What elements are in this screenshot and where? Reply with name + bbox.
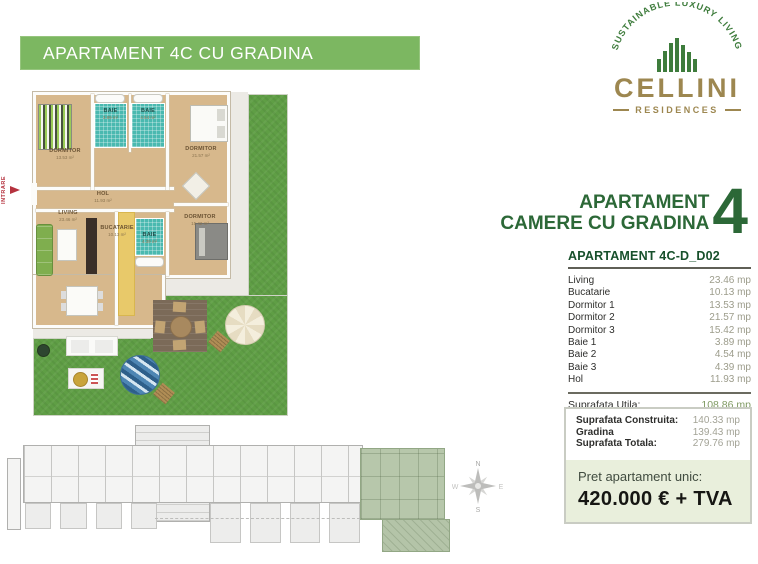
table-row: Dormitor 221.57 mp bbox=[568, 312, 751, 324]
garden-bench bbox=[66, 336, 118, 356]
bathtub-icon bbox=[95, 94, 125, 103]
bed-striped-icon bbox=[38, 104, 72, 150]
building-left-wing bbox=[7, 458, 21, 530]
brochure-page: APARTAMENT 4C CU GRADINA SUSTAINABLE LUX… bbox=[0, 0, 758, 564]
compass-icon: N S E W bbox=[452, 458, 504, 514]
summary-row: Suprafata Totala:279.76 mp bbox=[576, 438, 740, 450]
entrance-arrow-icon bbox=[10, 186, 20, 194]
highlighted-unit bbox=[360, 448, 445, 501]
right-dash bbox=[725, 109, 741, 111]
bathtub-icon bbox=[135, 257, 164, 267]
apartment-heading: APARTAMENT CAMERE CU GRADINA 4 bbox=[500, 188, 748, 238]
wall bbox=[166, 94, 169, 190]
bed-gray-icon bbox=[195, 223, 228, 260]
umbrella-blue-icon bbox=[120, 355, 160, 395]
summary-row: Suprafata Construita:140.33 mp bbox=[576, 415, 740, 427]
area-table: APARTAMENT 4C-D_D02 Living23.46 mp Bucat… bbox=[568, 249, 751, 411]
dining-table-icon bbox=[66, 286, 98, 316]
patio-deck bbox=[153, 300, 207, 352]
wall bbox=[174, 203, 228, 206]
balcony-row-right bbox=[210, 503, 360, 543]
wall bbox=[166, 212, 169, 276]
title-banner: APARTAMENT 4C CU GRADINA bbox=[20, 36, 420, 70]
coffee-table-icon bbox=[57, 229, 77, 261]
heading-line1: APARTAMENT bbox=[500, 192, 709, 213]
bathtub-icon bbox=[133, 94, 163, 103]
room-label-baie-1: BAIE3.89 m² bbox=[94, 108, 127, 121]
room-label-dormitor-2: DORMITOR21.57 m² bbox=[174, 146, 228, 159]
entrance-label: INTRARE bbox=[1, 176, 7, 204]
dimension-line bbox=[155, 518, 360, 519]
table-row: Hol11.93 mp bbox=[568, 374, 751, 386]
room-label-dormitor-1: DORMITOR13.53 m² bbox=[40, 148, 90, 161]
entrance-door-gap bbox=[31, 183, 37, 205]
heading-line2: CAMERE CU GRADINA bbox=[500, 213, 709, 234]
table-row: Baie 13.89 mp bbox=[568, 337, 751, 349]
room-label-living: LIVING23.46 m² bbox=[48, 210, 88, 223]
compass-n: N bbox=[475, 461, 480, 468]
brand-subtitle: RESIDENCES bbox=[635, 105, 719, 115]
summary-price-box: Suprafata Construita:140.33 mp Gradina13… bbox=[564, 407, 752, 524]
room-label-baie-3: BAIE4.39 m² bbox=[135, 232, 164, 245]
highlighted-unit-lower bbox=[360, 500, 445, 520]
table-row: Baie 24.54 mp bbox=[568, 349, 751, 361]
balcony-row-left bbox=[25, 503, 157, 529]
price-label: Pret apartament unic: bbox=[578, 469, 738, 484]
table-row: Baie 34.39 mp bbox=[568, 362, 751, 374]
walkway-right bbox=[230, 92, 248, 295]
wall bbox=[36, 187, 174, 190]
compass-e: E bbox=[499, 484, 504, 491]
building-plan bbox=[5, 422, 457, 558]
compass-w: W bbox=[452, 484, 459, 491]
room-label-dormitor-3: DORMITOR15.42 m² bbox=[174, 214, 226, 227]
walkway-mid bbox=[165, 278, 248, 295]
left-dash bbox=[613, 109, 629, 111]
umbrella-white-icon bbox=[225, 305, 265, 345]
highlighted-garden bbox=[382, 519, 450, 552]
room-label-hol: HOL11.93 m² bbox=[86, 191, 120, 204]
cellini-logo: SUSTAINABLE LUXURY LIVING CELLINI RESIDE… bbox=[598, 2, 756, 115]
price-value: 420.000 € + TVA bbox=[578, 488, 738, 511]
apartment-body-lower bbox=[33, 275, 165, 328]
room-label-baie-2: BAIE4.54 m² bbox=[131, 108, 165, 121]
building-icon bbox=[657, 38, 697, 72]
table-row: Living23.46 mp bbox=[568, 275, 751, 287]
unit-code-title: APARTAMENT 4C-D_D02 bbox=[568, 249, 751, 269]
table-row: Dormitor 315.42 mp bbox=[568, 325, 751, 337]
brand-subtitle-row: RESIDENCES bbox=[613, 105, 741, 115]
bbq-table bbox=[68, 368, 104, 389]
table-row: Bucatarie10.13 mp bbox=[568, 287, 751, 299]
price-area: Pret apartament unic: 420.000 € + TVA bbox=[566, 460, 750, 522]
summary-row: Gradina139.43 mp bbox=[576, 427, 740, 439]
building-strip bbox=[23, 445, 363, 503]
brand-name: CELLINI bbox=[614, 75, 740, 102]
room-label-bucatarie: BUCATARIE10.13 m² bbox=[96, 225, 138, 238]
compass-s: S bbox=[476, 507, 481, 514]
sofa-icon bbox=[36, 224, 53, 276]
shrub-icon bbox=[37, 344, 50, 357]
room-count: 4 bbox=[712, 184, 748, 238]
entrance-marker: INTRARE bbox=[1, 174, 23, 214]
page-title: APARTAMENT 4C CU GRADINA bbox=[43, 43, 313, 64]
apartment-floorplan: DORMITOR13.53 m² BAIE3.89 m² BAIE4.54 m²… bbox=[10, 88, 295, 420]
table-row: Dormitor 113.53 mp bbox=[568, 300, 751, 312]
bed-white-icon bbox=[190, 105, 228, 142]
